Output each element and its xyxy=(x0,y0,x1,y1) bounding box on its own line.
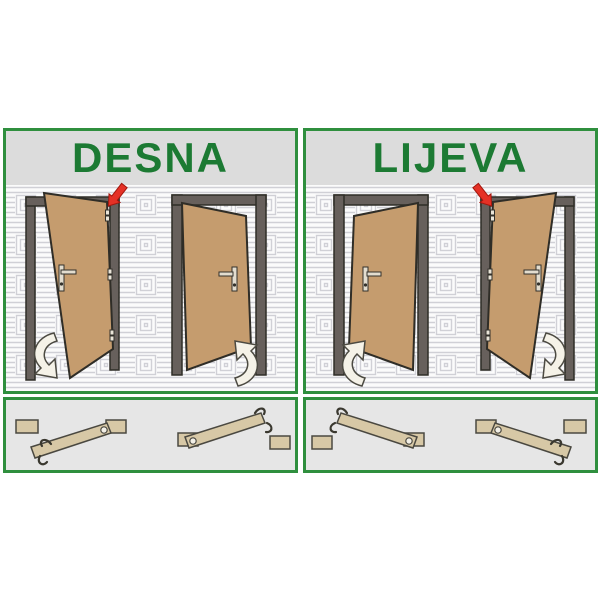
panel-lijeva: LIJEVA xyxy=(303,128,598,394)
plank-box-desna xyxy=(3,397,298,473)
door-area-lijeva xyxy=(306,185,595,391)
plank-scene-lijeva xyxy=(306,400,595,470)
plank-box-lijeva xyxy=(303,397,598,473)
door-scene-desna xyxy=(6,185,295,391)
flat-door-diagram-hinges-left xyxy=(16,420,126,464)
flat-door-diagram-hinges-right-mirrored xyxy=(476,420,586,464)
door-area-desna xyxy=(6,185,295,391)
panel-title-lijeva: LIJEVA xyxy=(306,131,595,185)
panel-desna: DESNA xyxy=(3,128,298,394)
plank-scene-desna xyxy=(6,400,295,470)
flat-door-diagram-hinges-right xyxy=(178,409,290,449)
flat-door-diagram-hinges-left-mirrored xyxy=(312,409,424,449)
door-scene-lijeva xyxy=(306,185,595,391)
panel-title-desna: DESNA xyxy=(6,131,295,185)
